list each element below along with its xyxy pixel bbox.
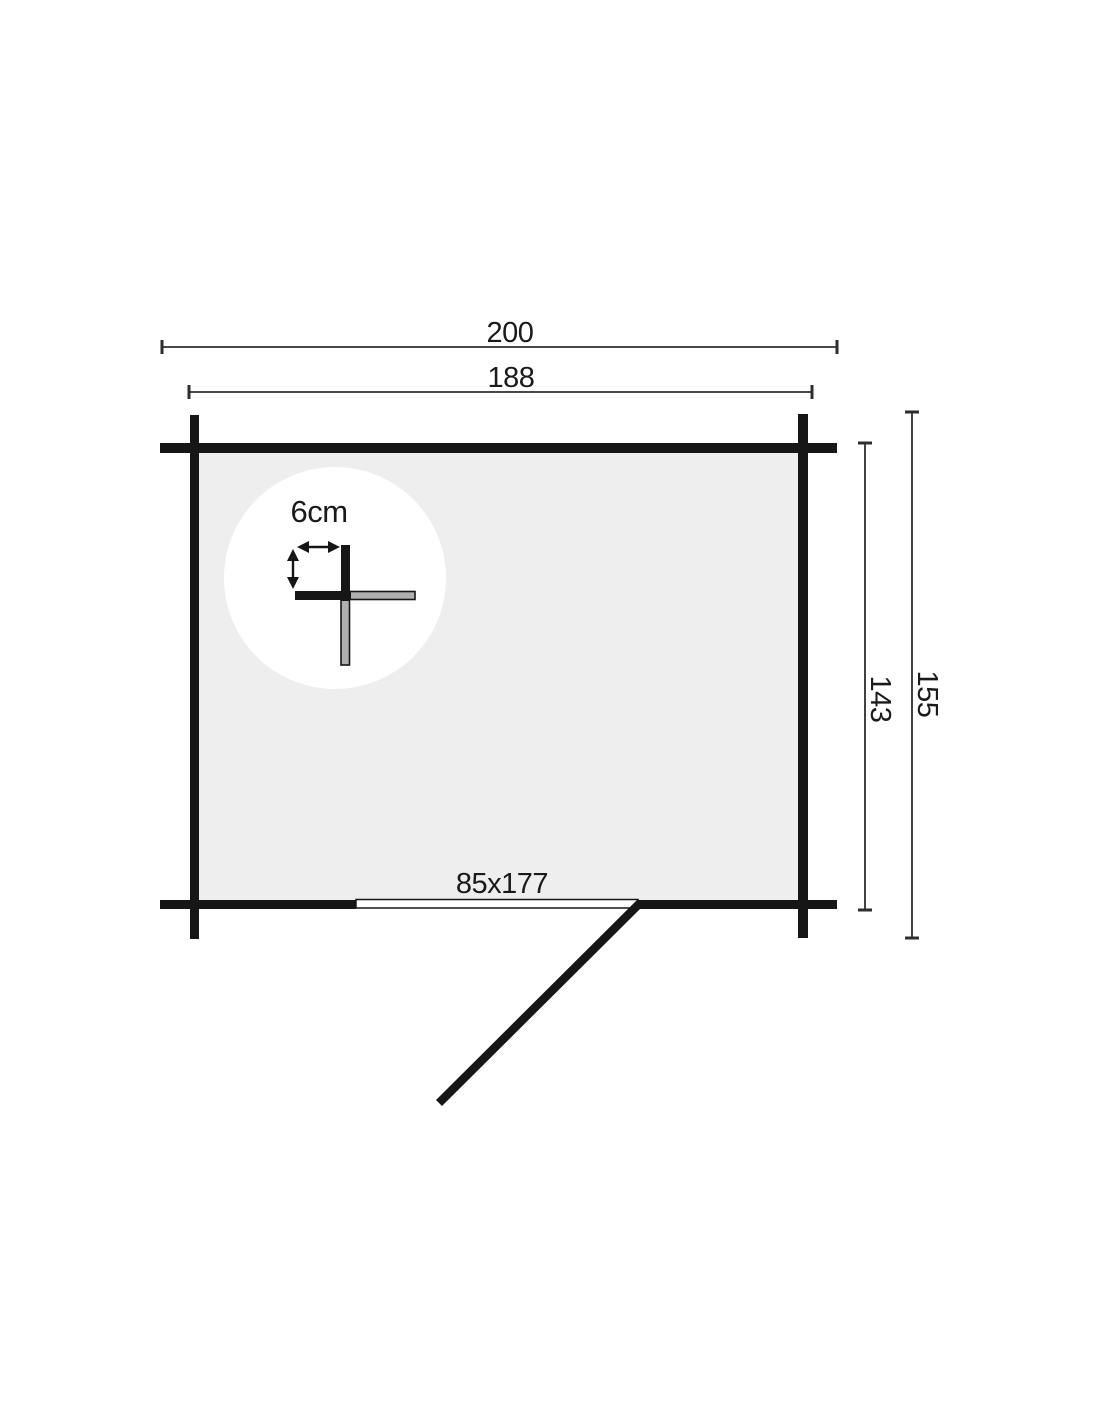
wall-left <box>190 415 199 939</box>
detail-plank-horizontal <box>348 592 415 600</box>
outer-width-dimension: 200 <box>162 317 837 354</box>
door-leaf <box>439 902 641 1103</box>
outer-width-label: 200 <box>487 317 534 349</box>
outer-depth-dimension: 155 <box>905 412 943 938</box>
door-opening <box>356 900 638 909</box>
door: 85x177 <box>356 868 641 1103</box>
inner-depth-dimension: 143 <box>858 443 896 910</box>
wall-top <box>160 443 837 453</box>
floor-plan-drawing: 200 188 143 155 6cm <box>0 0 1100 1422</box>
door-size-label: 85x177 <box>456 868 548 900</box>
inner-width-dimension: 188 <box>189 362 812 399</box>
detail-plank-vertical <box>341 599 350 665</box>
wall-thickness-label: 6cm <box>290 494 347 529</box>
detail-wall-vertical <box>341 545 350 601</box>
inner-width-label: 188 <box>488 362 535 394</box>
wall-bottom-left <box>160 900 356 909</box>
inner-depth-label: 143 <box>864 676 896 723</box>
floor-plan-canvas: 200 188 143 155 6cm <box>0 0 1100 1422</box>
wall-right <box>798 414 808 938</box>
wall-thickness-detail: 6cm <box>224 467 446 689</box>
outer-depth-label: 155 <box>911 671 943 718</box>
